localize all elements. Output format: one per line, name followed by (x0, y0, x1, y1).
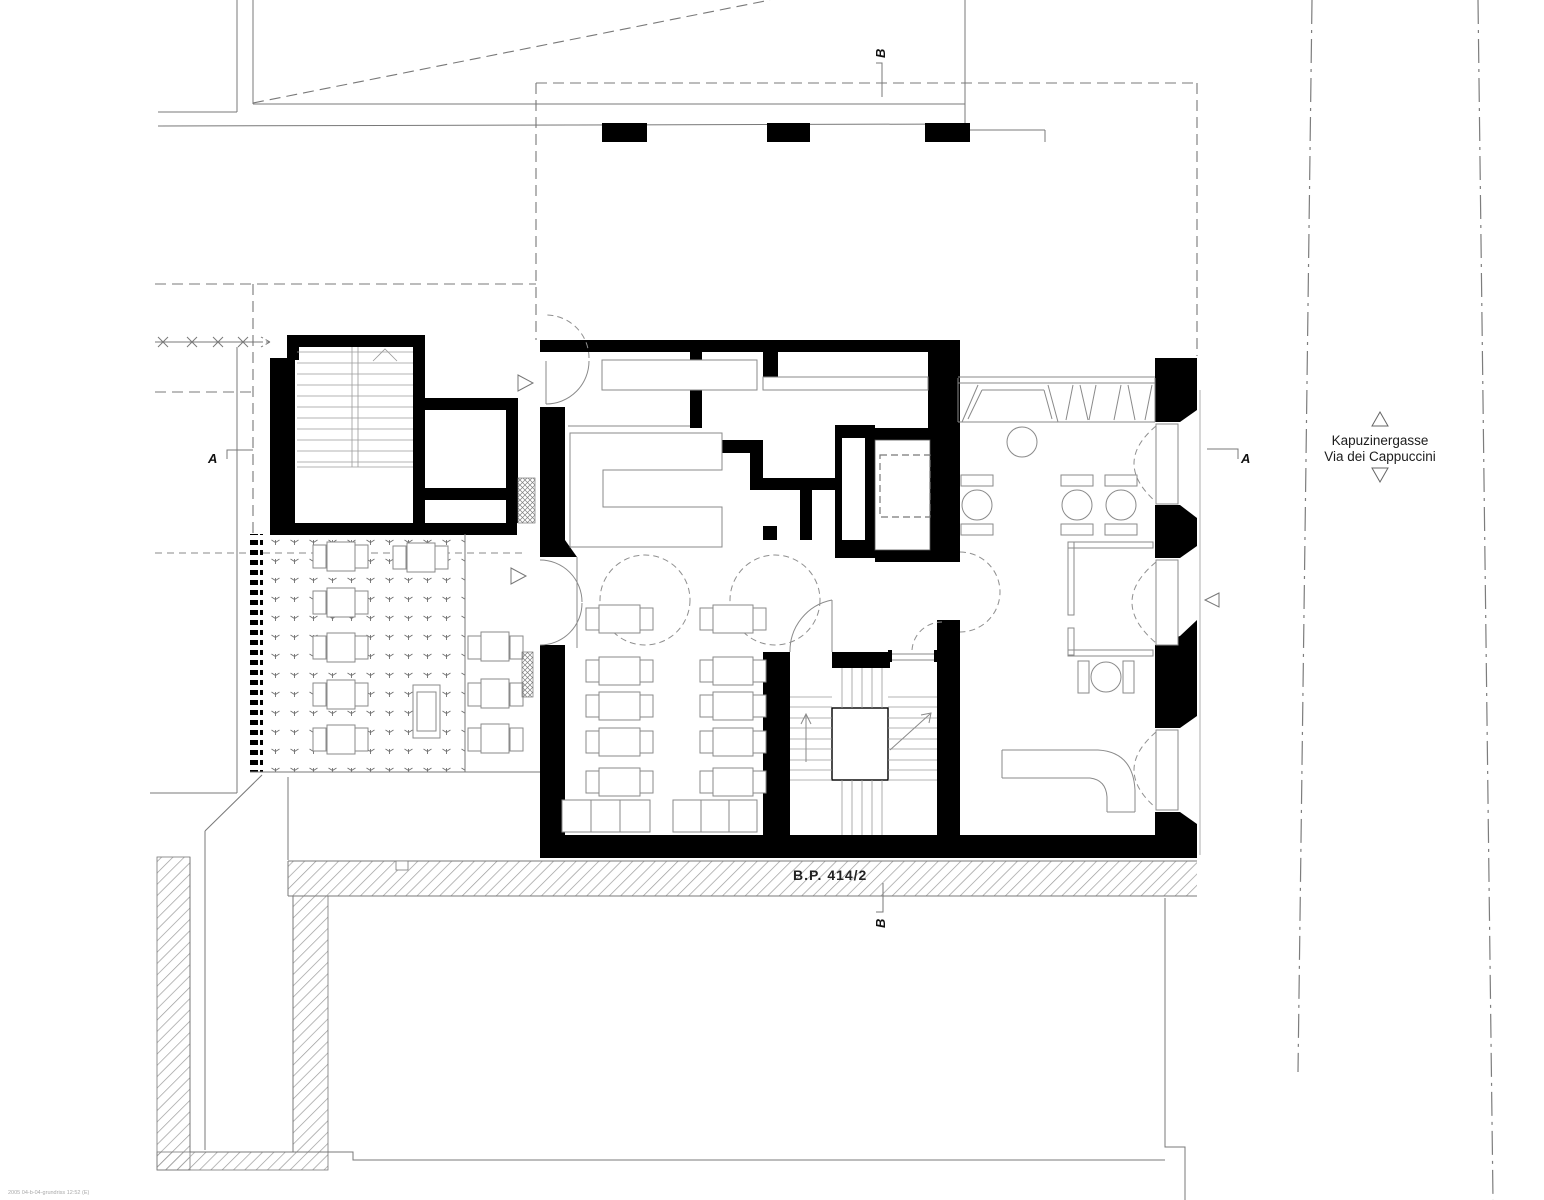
bar-counter (570, 433, 722, 547)
stair-core (832, 708, 888, 780)
section-marker-b-top: B (873, 49, 888, 58)
entry-arrow-icon (518, 375, 533, 391)
window-1 (1156, 424, 1178, 504)
dining-north-glazing (958, 377, 1155, 422)
stair-treads-upper (297, 347, 413, 467)
stair-direction-icon (373, 349, 397, 361)
street-kapuzinergasse: Kapuzinergasse Via dei Cappuccini (1205, 0, 1493, 1200)
right-wall-windows (1132, 390, 1200, 855)
nook-partition (1068, 542, 1153, 656)
counter-north-2 (763, 377, 928, 390)
facade-pier-1 (602, 123, 647, 142)
stair-diag-arrow-icon (890, 713, 931, 750)
bar-table (1007, 427, 1037, 457)
facade-pier-3 (925, 123, 970, 142)
stair-block (270, 335, 535, 535)
floor-plan-drawing: B.P. 414/2 Kapuzinergasse Via dei Cappuc… (0, 0, 1544, 1200)
restaurant-tables (562, 605, 766, 832)
section-marker-b-bottom: B (873, 919, 888, 928)
terrace (205, 534, 540, 1150)
print-stamp: 2005 04-b-04-grundriss 12:52 (E) (8, 1190, 89, 1196)
street-name-line1: Kapuzinergasse (1332, 433, 1429, 448)
wall-infill-hatch-2 (522, 652, 533, 697)
wall-infill-hatch-1 (518, 478, 535, 523)
stair-up-arrow-icon (801, 714, 811, 762)
gate-notch (396, 861, 408, 870)
fence-arrow-icon (258, 337, 270, 347)
central-stair (790, 668, 937, 835)
window-2 (1156, 560, 1178, 645)
property-boundary-dashed (155, 83, 1197, 553)
lift-shaft (875, 440, 930, 550)
terrace-edge-steps (250, 534, 263, 772)
street-direction-up-icon (1372, 412, 1388, 426)
section-marker-a-right: A (1240, 451, 1250, 466)
floor-plan-sheet: B.P. 414/2 Kapuzinergasse Via dei Cappuc… (0, 0, 1544, 1200)
south-bench (562, 800, 757, 832)
existing-building-outline-top (158, 0, 1045, 142)
site-south: B.P. 414/2 (157, 857, 1197, 1200)
terrace-entry-arrow-icon (511, 568, 526, 584)
facade-pier-2 (767, 123, 810, 142)
window-3 (1156, 730, 1178, 810)
parcel-hatch-band (288, 861, 1197, 896)
street-direction-down-icon (1372, 468, 1388, 482)
curved-bench (1002, 750, 1135, 812)
street-name-line2: Via dei Cappuccini (1324, 449, 1436, 464)
dining-room-furniture (961, 427, 1153, 812)
section-marker-a-left: A (207, 451, 217, 466)
shaft-door-slot (842, 438, 865, 540)
facade-arrow-icon (1205, 593, 1219, 607)
parcel-label: B.P. 414/2 (793, 867, 867, 883)
counter-north (602, 360, 757, 390)
neighbour-boundary-left (150, 347, 237, 793)
